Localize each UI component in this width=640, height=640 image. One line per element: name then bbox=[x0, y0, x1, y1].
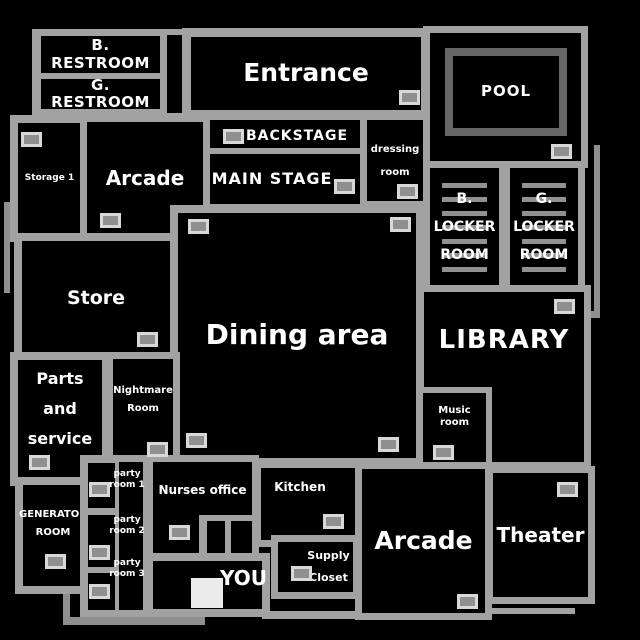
room-label: Supply Closet bbox=[307, 545, 349, 589]
room-label: dressing room bbox=[371, 138, 419, 184]
room-label: G. LOCKER ROOM bbox=[513, 185, 575, 269]
door-marker-generator bbox=[45, 554, 66, 569]
room-label: Dining area bbox=[206, 319, 389, 351]
room-label-party-2: party room 2 bbox=[105, 515, 149, 537]
room-label: Entrance bbox=[243, 59, 369, 88]
room-dining-area: Dining area bbox=[170, 205, 424, 466]
door-marker-dining-topleft bbox=[188, 219, 209, 234]
door-marker-arcade-bottom bbox=[457, 594, 478, 609]
room-g-restroom: G. RESTROOM bbox=[41, 79, 160, 109]
room-label: Nightmare Room bbox=[113, 382, 173, 418]
wall-bottom-mid bbox=[262, 611, 362, 619]
door-marker-arcade-top bbox=[100, 213, 121, 228]
door-marker-dressing bbox=[397, 184, 418, 199]
room-label: B. LOCKER ROOM bbox=[434, 185, 496, 269]
room-label: Store bbox=[67, 288, 125, 310]
door-marker-store bbox=[137, 332, 158, 347]
door-marker-backstage bbox=[223, 129, 244, 144]
room-label: Storage 1 bbox=[25, 173, 74, 183]
room-label-party-3: party room 3 bbox=[105, 558, 149, 580]
door-marker-nurses bbox=[169, 525, 190, 540]
room-label: Theater bbox=[497, 524, 585, 547]
room-label: POOL bbox=[481, 83, 531, 100]
door-marker-kitchen bbox=[323, 514, 344, 529]
door-marker-dining-bottomleft bbox=[186, 433, 207, 448]
room-label: Nurses office bbox=[159, 484, 247, 498]
room-label: GENERATOR ROOM bbox=[19, 506, 87, 542]
wall-under-theater bbox=[488, 608, 575, 614]
door-marker-dining-bottomright bbox=[378, 437, 399, 452]
room-supply-closet: Supply Closet bbox=[271, 535, 360, 599]
room-nightmare: Nightmare Room bbox=[106, 352, 180, 464]
room-label: MAIN STAGE bbox=[212, 170, 333, 188]
door-marker-theater bbox=[557, 482, 578, 497]
door-marker-parts bbox=[29, 455, 50, 470]
room-entrance: Entrance bbox=[182, 28, 430, 119]
pool-water: POOL bbox=[445, 48, 567, 136]
room-g-locker: G. LOCKER ROOM bbox=[503, 161, 585, 292]
hallway-channel bbox=[167, 35, 182, 113]
room-label: BACKSTAGE bbox=[246, 128, 348, 144]
nurses-stalls bbox=[199, 515, 252, 556]
room-label: Kitchen bbox=[274, 481, 326, 495]
player-marker bbox=[191, 578, 223, 608]
room-label: Arcade bbox=[106, 167, 185, 190]
door-marker-pool bbox=[551, 144, 572, 159]
outer-wall-bottomleft-horizontal bbox=[63, 617, 205, 625]
door-marker-party2 bbox=[89, 545, 110, 560]
door-marker-library bbox=[554, 299, 575, 314]
room-music: Music room bbox=[417, 387, 492, 469]
door-marker-supply bbox=[291, 566, 312, 581]
room-label: LIBRARY bbox=[439, 326, 570, 356]
room-label: Music room bbox=[423, 405, 486, 428]
room-label: G. RESTROOM bbox=[41, 77, 160, 112]
door-marker-storage1 bbox=[21, 132, 42, 147]
door-marker-party1 bbox=[89, 482, 110, 497]
door-marker-dining-topright bbox=[390, 217, 411, 232]
stall-cell bbox=[231, 521, 252, 556]
room-label: Arcade bbox=[374, 527, 472, 556]
room-b-locker: B. LOCKER ROOM bbox=[423, 161, 506, 292]
player-label: YOU bbox=[220, 566, 266, 590]
door-marker-entrance bbox=[399, 90, 420, 105]
room-label: Parts and service bbox=[18, 364, 102, 454]
stall-cell bbox=[207, 521, 225, 556]
room-b-restroom: B. RESTROOM bbox=[41, 36, 160, 73]
door-marker-nightmare bbox=[147, 442, 168, 457]
floor-plan-map: B. RESTROOM G. RESTROOM Entrance POOL BA… bbox=[0, 0, 640, 640]
room-dressing: dressing room bbox=[360, 113, 430, 208]
outer-wall-right-vertical bbox=[594, 145, 600, 318]
door-marker-main-stage bbox=[334, 179, 355, 194]
room-label: B. RESTROOM bbox=[41, 37, 160, 72]
door-marker-music bbox=[433, 445, 454, 460]
door-marker-party3 bbox=[89, 584, 110, 599]
room-label-party-1: party room 1 bbox=[105, 469, 149, 491]
room-theater: Theater bbox=[486, 466, 595, 604]
